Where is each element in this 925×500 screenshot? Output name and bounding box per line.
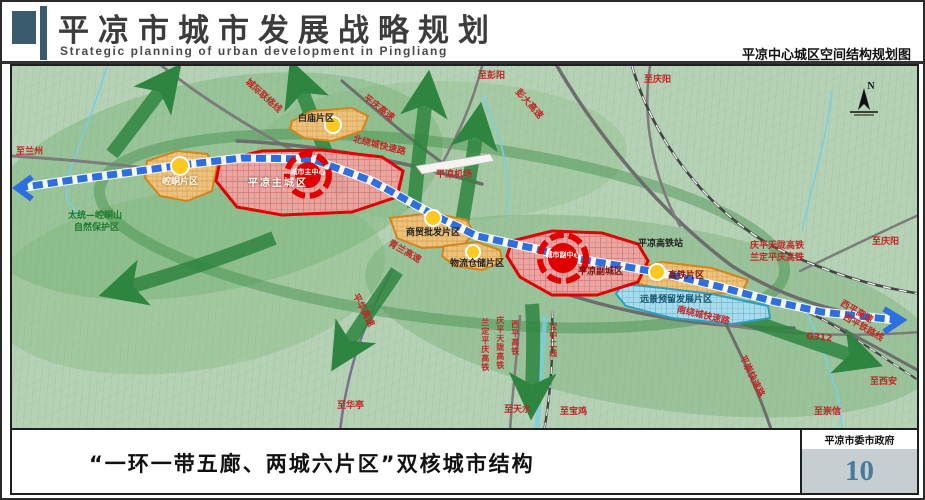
compass: N: [848, 74, 894, 93]
zone-label-main-city: 平凉主城区: [248, 178, 308, 189]
node-hsr: [649, 264, 665, 280]
credit-box: 平凉市委市政府 10: [800, 430, 917, 493]
rail-qptl-hsr-vertical: 庆平天陇高铁: [495, 316, 504, 370]
dir-tianshui: 至天水: [504, 406, 531, 416]
zone-label-kongtong: 崆峒片区: [162, 178, 198, 188]
zone-label-sub-city: 平凉副城区: [578, 268, 623, 278]
dir-baoji: 至宝鸡: [560, 408, 587, 418]
page: 平凉市城市发展战略规划 Strategic planning of urban …: [0, 0, 925, 500]
header: 平凉市城市发展战略规划 Strategic planning of urban …: [2, 2, 923, 64]
node-logistics: [466, 245, 480, 259]
dir-qingyang-right: 至庆阳: [872, 238, 899, 248]
zone-label-logistics: 物流仓储片区: [450, 260, 504, 270]
rail-baozhong2-vertical: 宝中二线: [548, 322, 557, 358]
nature-reserve-label-line2: 自然保护区: [74, 224, 119, 234]
dir-chongxin: 至崇信: [814, 408, 841, 418]
main-center-label: 城市主中心: [290, 168, 326, 176]
node-kongtong: [171, 157, 189, 175]
zone-label-baimiao: 白庙片区: [298, 115, 334, 125]
footer: “一环一带五廊、两城六片区”双核城市结构 平凉市委市政府 10: [10, 430, 919, 495]
rail-ldpq-hsr: 兰定平庆高铁: [750, 254, 804, 264]
structure-caption: “一环一带五廊、两城六片区”双核城市结构: [89, 448, 535, 478]
page-subtitle: Strategic planning of urban development …: [60, 44, 448, 58]
nature-reserve-label-line1: 太统—崆峒山: [68, 212, 122, 222]
rail-xiping-hsr-vertical: 西平高铁: [510, 320, 519, 356]
dir-huating: 至华亭: [337, 402, 364, 412]
page-number: 10: [802, 449, 917, 493]
dir-qingyang-top: 至庆阳: [644, 76, 671, 86]
header-logo-square: [12, 11, 36, 44]
sub-center-label: 城市副中心: [543, 251, 583, 259]
dir-pengyang: 至彭阳: [478, 72, 505, 82]
compass-north-label: N: [867, 81, 874, 92]
rail-qptl-hsr: 庆平天陇高铁: [750, 242, 804, 252]
zone-label-hsr-district: 高铁片区: [668, 272, 704, 282]
dir-xian: 至西安: [870, 378, 897, 388]
airport-label: 平凉机场: [436, 171, 472, 181]
map-caption: 平凉中心城区空间结构规划图: [742, 44, 911, 63]
rail-ldpq-hsr-vertical: 兰定平庆高铁: [480, 318, 489, 372]
hsr-station-label: 平凉高铁站: [638, 240, 683, 250]
planning-map: 至兰州 城际联络线 北绕城快速路 平庆高速 彭大高速 至彭阳 至庆阳 平凉机场 …: [10, 64, 919, 430]
zone-label-reserved: 远景预留发展片区: [640, 296, 712, 306]
node-wholesale: [425, 210, 441, 226]
dir-lanzhou: 至兰州: [16, 148, 43, 158]
header-accent-bar: [40, 6, 47, 60]
agency-label: 平凉市委市政府: [802, 430, 917, 449]
zone-label-wholesale: 商贸批发片区: [406, 229, 460, 239]
